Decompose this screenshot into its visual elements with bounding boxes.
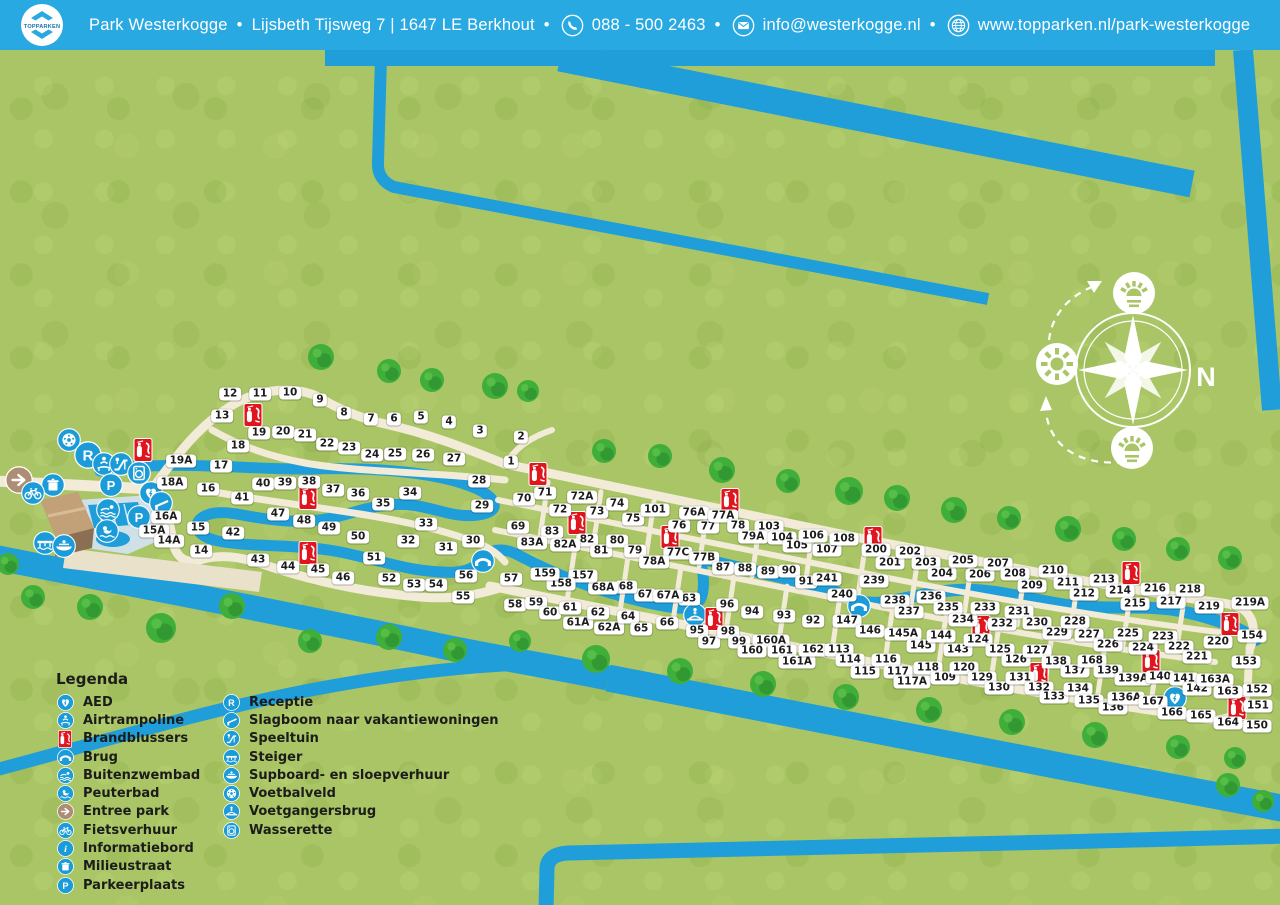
legend-item-label: Entree park (83, 804, 169, 819)
compass-label-n: N (1196, 362, 1216, 392)
plot-label: 225 (1114, 628, 1143, 641)
email-address: info@westerkogge.nl (763, 16, 921, 35)
plot-label: 6 (387, 413, 401, 426)
plot-label: 88 (734, 563, 756, 576)
park-map-page: { "header": { "logo_text": "TOPPARKEN", … (0, 0, 1280, 905)
brandblussers-icon (244, 403, 263, 427)
plot-label: 159 (531, 568, 560, 581)
plot-label: 20 (272, 426, 294, 439)
legend-title: Legenda (56, 670, 499, 688)
plot-label: 154 (1238, 630, 1267, 643)
aed-icon (56, 694, 74, 711)
legend-column-1: AEDAirtrampolineBrandblussersBrugBuitenz… (56, 693, 222, 894)
tree (941, 497, 967, 523)
plot-label: 70 (513, 493, 535, 506)
plot-label: 18A (157, 477, 187, 490)
milieustraat-icon (56, 858, 74, 875)
legend-item-milieustraat: Milieustraat (56, 858, 222, 876)
plot-label: 16 (197, 483, 219, 496)
receptie-icon: R (222, 694, 240, 711)
peuterbad-icon (56, 785, 74, 802)
tree (1112, 527, 1136, 551)
plot-label: 50 (347, 531, 369, 544)
brandblussers-icon (721, 488, 740, 512)
plot-label: 232 (988, 618, 1017, 631)
plot-label: 33 (415, 518, 437, 531)
plot-label: 25 (384, 448, 406, 461)
legend-item-label: Supboard- en sloepverhuur (249, 768, 449, 783)
tree (377, 359, 401, 383)
plot-label: 5 (414, 411, 428, 424)
legend-item-label: Wasserette (249, 823, 332, 838)
tree (750, 671, 776, 697)
plot-label: 92 (802, 615, 824, 628)
plot-label: 41 (231, 492, 253, 505)
plot-label: 106 (799, 530, 828, 543)
tree (517, 380, 539, 402)
legend-item-label: Slagboom naar vakantiewoningen (249, 713, 499, 728)
tree (1218, 546, 1242, 570)
plot-label: 214 (1106, 585, 1135, 598)
brandblussers-icon (529, 462, 548, 486)
tree (21, 585, 45, 609)
plot-label: 1 (504, 456, 518, 469)
legend-item-label: Brandblussers (83, 731, 188, 746)
legend-item-brandblussers: Brandblussers (56, 730, 222, 748)
website-url: www.topparken.nl/park-westerkogge (978, 16, 1251, 35)
tree (509, 630, 531, 652)
legend: Legenda AEDAirtrampolineBrandblussersBru… (56, 670, 499, 894)
supboard-icon (222, 767, 240, 784)
plot-label: 37 (322, 484, 344, 497)
tree (1166, 537, 1190, 561)
plot-label: 46 (332, 572, 354, 585)
park-address: Lijsbeth Tijsweg 7 | 1647 LE Berkhout (252, 16, 535, 35)
plot-label: 48 (293, 515, 315, 528)
legend-item-label: Brug (83, 750, 118, 765)
fietsverhuur-icon (56, 822, 74, 839)
voetbalveld-icon (222, 785, 240, 802)
plot-label: 205 (949, 555, 978, 568)
plot-label: 240 (828, 589, 857, 602)
tree (1166, 735, 1190, 759)
plot-label: 82A (550, 539, 580, 552)
plot-label: 21 (294, 429, 316, 442)
plot-label: 16A (151, 511, 181, 524)
plot-label: 215 (1121, 598, 1150, 611)
plot-label: 68A (588, 582, 618, 595)
parkeerplaats-icon: P (99, 473, 123, 497)
plot-label: 54 (425, 579, 447, 592)
legend-item-label: Fietsverhuur (83, 823, 177, 838)
plot-label: 40 (252, 478, 274, 491)
tree (77, 594, 103, 620)
plot-label: 67A (653, 590, 683, 603)
plot-label: 19A (166, 455, 196, 468)
mail-icon (732, 14, 755, 37)
separator-dot: • (237, 16, 243, 35)
plot-label: 9 (313, 394, 327, 407)
plot-label: 14 (190, 545, 212, 558)
logo-text: TOPPARKEN (24, 24, 60, 30)
header-contact-line: Park Westerkogge • Lijsbeth Tijsweg 7 | … (89, 14, 1250, 37)
entreepark-icon (56, 803, 74, 820)
plot-label: 30 (462, 535, 484, 548)
plot-label: 47 (267, 508, 289, 521)
legend-item-label: AED (83, 695, 113, 710)
tree (835, 477, 863, 505)
plot-label: 204 (928, 568, 957, 581)
separator-dot: • (544, 16, 550, 35)
legend-item-label: Airtrampoline (83, 713, 184, 728)
plot-label: 10 (279, 387, 301, 400)
plot-label: 228 (1061, 616, 1090, 629)
plot-label: 165 (1187, 710, 1216, 723)
brug-icon (56, 749, 74, 766)
plot-label: 209 (1018, 580, 1047, 593)
plot-label: 76A (679, 507, 709, 520)
plot-label: 97 (698, 636, 720, 649)
legend-item-label: Steiger (249, 750, 302, 765)
phone-icon (561, 14, 584, 37)
plot-label: 52 (378, 573, 400, 586)
plot-label: 69 (507, 521, 529, 534)
wasserette-icon (222, 822, 240, 839)
plot-label: 115 (851, 666, 880, 679)
plot-label: 161A (778, 656, 815, 669)
svg-text:R: R (228, 698, 235, 708)
tree (1224, 747, 1246, 769)
legend-column-2: RReceptieSlagboom naar vakantiewoningenS… (222, 693, 499, 894)
plot-label: 23 (338, 442, 360, 455)
parkeerplaats-icon: P (56, 877, 74, 894)
plot-label: 72A (567, 491, 597, 504)
globe-icon (947, 14, 970, 37)
plot-label: 144 (927, 630, 956, 643)
plot-label: 44 (277, 561, 299, 574)
svg-text:P: P (135, 510, 144, 525)
plot-label: 117A (893, 676, 930, 689)
plot-label: 151 (1244, 700, 1273, 713)
legend-item-label: Parkeerplaats (83, 878, 185, 893)
legend-item-aed: AED (56, 693, 222, 711)
tree (308, 344, 334, 370)
plot-label: 38 (298, 476, 320, 489)
plot-label: 14A (154, 535, 184, 548)
plot-label: 45 (307, 564, 329, 577)
midday-sun-icon (1036, 343, 1078, 385)
plot-label: 49 (318, 522, 340, 535)
tree (1055, 516, 1081, 542)
tree (997, 506, 1021, 530)
legend-item-voetbalveld: Voetbalveld (222, 784, 499, 802)
tree (443, 638, 467, 662)
plot-label: 78A (639, 556, 669, 569)
plot-label: 56 (455, 570, 477, 583)
plot-label: 12 (219, 388, 241, 401)
tree (884, 485, 910, 511)
plot-label: 3 (473, 425, 487, 438)
plot-label: 160 (738, 645, 767, 658)
legend-item-label: Buitenzwembad (83, 768, 200, 783)
plot-label: 163 (1214, 686, 1243, 699)
sunset-icon (1113, 272, 1155, 314)
legend-item-label: Peuterbad (83, 786, 159, 801)
plot-label: 18 (227, 440, 249, 453)
legend-item-entreepark: Entree park (56, 803, 222, 821)
legend-item-label: Voetbalveld (249, 786, 336, 801)
plot-label: 24 (361, 449, 383, 462)
legend-item-airtrampoline: Airtrampoline (56, 711, 222, 729)
legend-item-wasserette: Wasserette (222, 821, 499, 839)
plot-label: 217 (1157, 596, 1186, 609)
plot-label: 15 (187, 522, 209, 535)
legend-item-label: Voetgangersbrug (249, 804, 376, 819)
plot-label: 66 (656, 617, 678, 630)
sunrise-icon (1111, 427, 1153, 469)
informatiebord-icon: i (56, 840, 74, 857)
tree (482, 373, 508, 399)
speeltuin-icon (222, 730, 240, 747)
tree (420, 368, 444, 392)
plot-label: 94 (741, 606, 763, 619)
park-name: Park Westerkogge (89, 16, 228, 35)
plot-label: 219 (1195, 601, 1224, 614)
legend-item-receptie: RReceptie (222, 693, 499, 711)
plot-label: 89 (757, 566, 779, 579)
legend-item-steiger: Steiger (222, 748, 499, 766)
voetgangersbrug-icon (683, 603, 707, 627)
plot-label: 221 (1183, 651, 1212, 664)
tree (592, 439, 616, 463)
plot-label: 153 (1232, 656, 1261, 669)
header-bar: TOPPARKEN Park Westerkogge • Lijsbeth Ti… (0, 0, 1280, 50)
legend-item-fietsverhuur: Fietsverhuur (56, 821, 222, 839)
plot-label: 61 (559, 602, 581, 615)
plot-label: 32 (397, 535, 419, 548)
plot-label: 79A (738, 531, 768, 544)
brandblussers-icon (56, 730, 74, 748)
plot-label: 7 (364, 413, 378, 426)
plot-label: 96 (716, 599, 738, 612)
plot-label: 27 (443, 453, 465, 466)
plot-label: 28 (468, 475, 490, 488)
svg-text:i: i (64, 844, 67, 855)
plot-label: 53 (403, 579, 425, 592)
brandblussers-icon (299, 486, 318, 510)
plot-label: 71 (534, 487, 556, 500)
plot-label: 74 (606, 498, 628, 511)
plot-label: 164 (1214, 717, 1243, 730)
plot-label: 162 (799, 644, 828, 657)
brandblussers-icon (134, 438, 153, 462)
legend-item-brug: Brug (56, 748, 222, 766)
tree (776, 469, 800, 493)
logo-chevron-bottom (31, 30, 53, 40)
plot-label: 237 (895, 606, 924, 619)
airtrampoline-icon (56, 712, 74, 729)
brandblussers-icon (299, 541, 318, 565)
plot-label: 87 (712, 562, 734, 575)
plot-label: 35 (372, 498, 394, 511)
slagboom-icon (222, 712, 240, 729)
plot-label: 55 (452, 591, 474, 604)
plot-label: 11 (249, 388, 271, 401)
tree (709, 457, 735, 483)
legend-item-supboard: Supboard- en sloepverhuur (222, 766, 499, 784)
tree (582, 645, 610, 673)
tree (298, 629, 322, 653)
plot-label: 101 (641, 504, 670, 517)
logo-chevron-top (31, 11, 53, 21)
plot-label: 62 (587, 607, 609, 620)
plot-label: 36 (347, 488, 369, 501)
tree (1082, 722, 1108, 748)
plot-label: 65 (630, 623, 652, 636)
svg-text:P: P (62, 881, 68, 891)
plot-label: 4 (442, 416, 456, 429)
plot-label: 216 (1141, 583, 1170, 596)
voetgangersbrug-icon (222, 803, 240, 820)
tree (648, 444, 672, 468)
plot-label: 93 (773, 610, 795, 623)
steiger-icon (222, 749, 240, 766)
supboard-icon (52, 534, 76, 558)
plot-label: 22 (316, 438, 338, 451)
tree (219, 593, 245, 619)
legend-item-buitenzwembad: Buitenzwembad (56, 766, 222, 784)
plot-label: 17 (210, 460, 232, 473)
plot-label: 166 (1158, 707, 1187, 720)
plot-label: 212 (1070, 588, 1099, 601)
separator-dot: • (930, 16, 936, 35)
plot-label: 31 (435, 542, 457, 555)
tree (1252, 790, 1274, 812)
plot-label: 73 (586, 506, 608, 519)
legend-item-label: Speeltuin (249, 731, 319, 746)
separator-dot: • (715, 16, 721, 35)
plot-label: 219A (1231, 597, 1268, 610)
svg-text:P: P (107, 478, 116, 493)
plot-label: 51 (363, 552, 385, 565)
plot-label: 58 (504, 599, 526, 612)
plot-label: 150 (1243, 720, 1272, 733)
plot-label: 60 (539, 607, 561, 620)
phone-number: 088 - 500 2463 (592, 16, 706, 35)
plot-label: 234 (949, 614, 978, 627)
legend-item-label: Informatiebord (83, 841, 194, 856)
plot-label: 13 (211, 410, 233, 423)
plot-label: 8 (337, 407, 351, 420)
plot-label: 220 (1204, 636, 1233, 649)
plot-label: 68 (615, 581, 637, 594)
plot-label: 239 (860, 575, 889, 588)
plot-label: 42 (222, 527, 244, 540)
plot-label: 83A (517, 537, 547, 550)
plot-label: 200 (862, 544, 891, 557)
brandblussers-icon (1122, 561, 1141, 585)
plot-label: 146 (856, 625, 885, 638)
tree (1216, 773, 1240, 797)
topparken-logo: TOPPARKEN (21, 4, 63, 46)
plot-label: 152 (1243, 684, 1272, 697)
buitenzwembad-icon (56, 767, 74, 784)
tree (667, 658, 693, 684)
plot-label: 39 (274, 477, 296, 490)
tree (999, 709, 1025, 735)
plot-label: 72 (549, 504, 571, 517)
plot-label: 57 (500, 573, 522, 586)
plot-label: 76 (668, 520, 690, 533)
plot-label: 108 (830, 533, 859, 546)
legend-item-label: Milieustraat (83, 859, 172, 874)
legend-item-parkeerplaats: PParkeerplaats (56, 876, 222, 894)
tree (833, 684, 859, 710)
legend-item-peuterbad: Peuterbad (56, 784, 222, 802)
plot-label: 2 (514, 431, 528, 444)
legend-item-voetgangersbrug: Voetgangersbrug (222, 803, 499, 821)
plot-label: 29 (471, 500, 493, 513)
tree (146, 613, 176, 643)
plot-label: 233 (971, 602, 1000, 615)
plot-label: 26 (412, 449, 434, 462)
legend-item-slagboom: Slagboom naar vakantiewoningen (222, 711, 499, 729)
legend-item-speeltuin: Speeltuin (222, 730, 499, 748)
plot-label: 19 (248, 427, 270, 440)
tree (376, 624, 402, 650)
plot-label: 218 (1176, 584, 1205, 597)
plot-label: 43 (247, 554, 269, 567)
legend-item-informatiebord: iInformatiebord (56, 839, 222, 857)
fietsverhuur-icon (21, 481, 45, 505)
tree (916, 697, 942, 723)
plot-label: 241 (813, 573, 842, 586)
peuterbad-icon (95, 519, 119, 543)
plot-label: 34 (399, 487, 421, 500)
legend-item-label: Receptie (249, 695, 313, 710)
